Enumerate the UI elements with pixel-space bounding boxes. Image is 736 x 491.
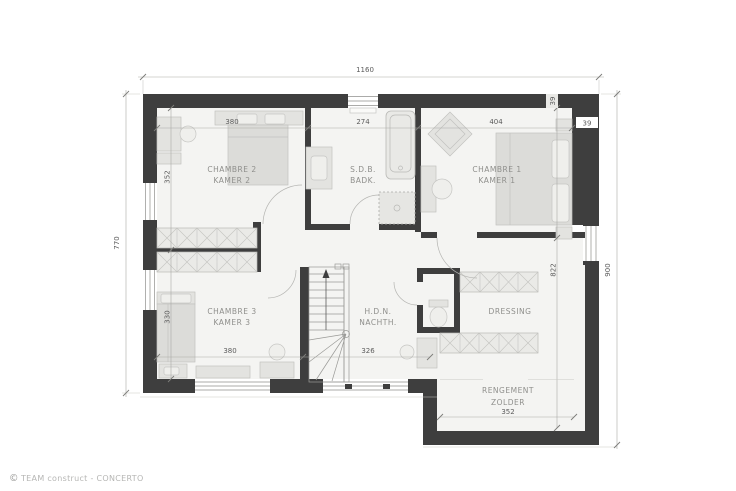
dim-hdn-width: 326 <box>361 347 375 355</box>
brand-text: TEAM construct - CONCERTO <box>20 474 144 483</box>
label-chambre3-nl: KAMER 3 <box>214 318 251 327</box>
label-chambre1-fr: CHAMBRE 1 <box>472 165 521 174</box>
dim-chambre1-width: 404 <box>489 118 503 126</box>
dim-left-total: 770 <box>113 236 121 249</box>
label-sdb-fr: S.D.B. <box>350 165 376 174</box>
label-chambre1-nl: KAMER 1 <box>479 176 516 185</box>
floorplan-canvas: 1160 770 900 380 274 404 39 39 352 330 3… <box>0 0 736 491</box>
furniture-bathtub <box>386 111 415 179</box>
label-sdb-nl: BADK. <box>350 176 376 185</box>
footer: © TEAM construct - CONCERTO <box>9 473 144 484</box>
label-hdn-nl: NACHTH. <box>359 318 396 327</box>
dim-right-total: 900 <box>604 263 612 276</box>
furniture-bed-chambre3 <box>157 292 195 362</box>
label-chambre3-fr: CHAMBRE 3 <box>207 307 256 316</box>
brand-logo-icon: © <box>9 473 19 484</box>
dim-rangement-width: 352 <box>501 408 514 416</box>
label-dressing: DRESSING <box>489 307 532 316</box>
label-rangement-fr: RENGEMENT <box>482 386 534 395</box>
label-chambre2-fr: CHAMBRE 2 <box>207 165 256 174</box>
dim-wall-39-top: 39 <box>549 97 557 106</box>
furniture-washbasin <box>306 147 332 189</box>
dim-top-total: 1160 <box>356 66 374 74</box>
furniture-shower <box>379 192 415 224</box>
dim-dressing-depth: 822 <box>550 263 558 276</box>
closet-dressing-bottom <box>440 333 538 353</box>
label-rangement-nl: ZOLDER <box>491 398 525 407</box>
toilet-icon <box>429 300 448 327</box>
dim-wall-39-right: 39 <box>583 120 592 128</box>
label-chambre2-nl: KAMER 2 <box>214 176 251 185</box>
dim-chambre2-width: 380 <box>225 118 238 126</box>
dim-chambre3-width: 380 <box>223 347 236 355</box>
closet-corridor-top <box>157 228 257 248</box>
closet-corridor-bottom <box>157 252 257 272</box>
floorplan-drawing: 1160 770 900 380 274 404 39 39 352 330 3… <box>0 0 736 491</box>
closet-dressing-top <box>460 272 538 292</box>
furniture-nightstand-chambre3 <box>159 364 187 378</box>
dim-chambre2-depth: 352 <box>164 170 172 183</box>
dim-sdb-width: 274 <box>356 118 370 126</box>
label-hdn-fr: H.D.N. <box>364 307 391 316</box>
dim-chambre3-depth: 330 <box>164 310 172 323</box>
